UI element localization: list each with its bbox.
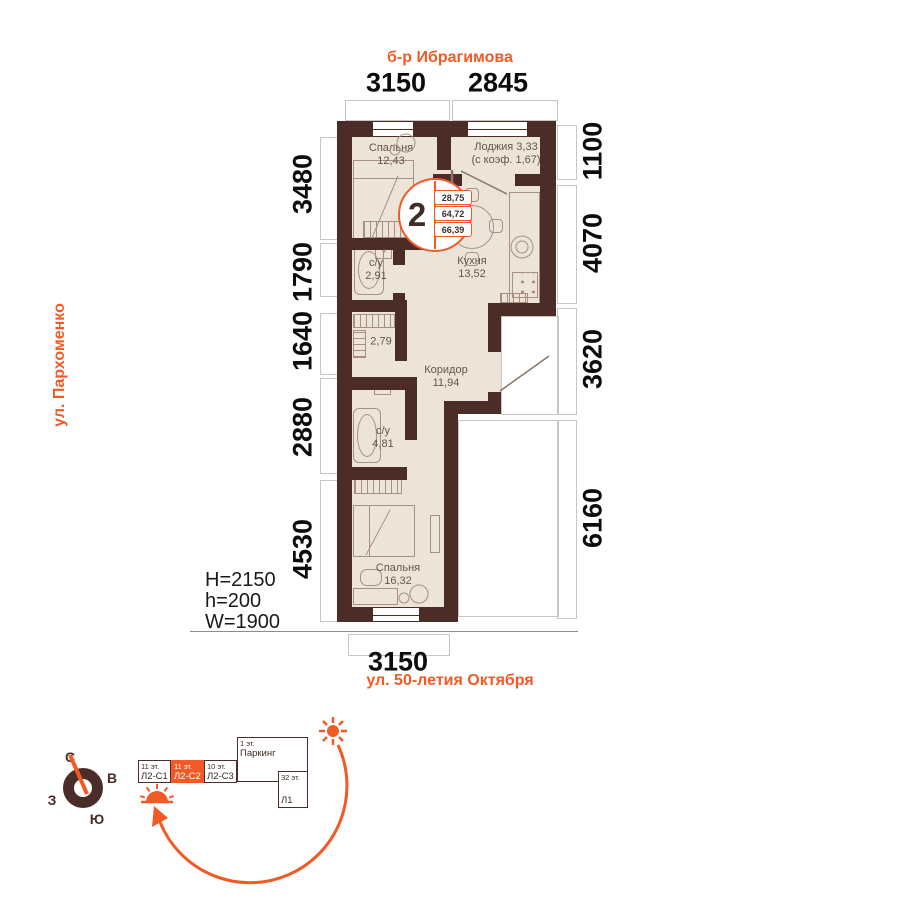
dim-bracket — [345, 100, 450, 121]
dim-top-1: 3150 — [366, 68, 426, 99]
area-chip-2: 64,72 — [434, 206, 472, 221]
dim-bracket — [557, 420, 577, 619]
wall — [405, 390, 417, 440]
window-bedroom2 — [372, 607, 420, 622]
spec-window: W=1900 — [205, 612, 280, 633]
kitchen-cabinet — [500, 293, 528, 303]
wall — [437, 137, 451, 170]
dim-left-1: 3480 — [288, 154, 319, 214]
desk — [353, 588, 398, 605]
room-label-corridor: Коридор 11,94 — [424, 364, 467, 390]
wall — [352, 467, 407, 480]
dim-right-1: 1100 — [578, 122, 609, 181]
wall — [540, 121, 556, 303]
compass-ring — [63, 768, 103, 808]
area-chip-1: 28,75 — [434, 190, 472, 205]
room-label-kitchen: Кухня 13,52 — [457, 255, 486, 281]
wall — [352, 300, 407, 312]
dim-right-4: 6160 — [578, 488, 609, 548]
wall — [352, 377, 417, 390]
dim-bottom-1: 3150 — [368, 647, 428, 678]
window-bedroom1 — [372, 121, 414, 137]
wall — [444, 401, 501, 414]
wall — [414, 121, 467, 137]
bed-pillow — [353, 505, 370, 557]
dim-right-2: 4070 — [578, 213, 609, 273]
room-label-bath2: с/у 4,81 — [372, 425, 393, 451]
area-chip-3: 66,39 — [434, 222, 472, 237]
dim-bracket — [557, 125, 577, 180]
sun-icon — [319, 717, 347, 745]
dim-left-5: 4530 — [288, 519, 319, 579]
dim-bracket — [557, 308, 577, 415]
wall — [393, 250, 405, 265]
neighbour-outline — [458, 420, 559, 617]
dim-top-2: 2845 — [468, 68, 528, 99]
building-block-l2s1[interactable]: 11 эт. Л2-С1 — [138, 760, 171, 783]
building-block-l2s3[interactable]: 10 эт. Л2-С3 — [204, 760, 237, 783]
spec-leader-line — [190, 631, 578, 632]
compass-west: З — [43, 792, 61, 808]
room-label-loggia: Лоджия 3,33 (с коэф. 1,67) — [471, 141, 540, 167]
compass-north: С — [61, 749, 79, 765]
spec-sill: h=200 — [205, 591, 280, 612]
dim-left-2: 1790 — [288, 242, 319, 302]
room-label-bedroom2: Спальня 16,32 — [376, 562, 420, 588]
street-top-label: б-р Ибрагимова — [387, 49, 513, 67]
wall — [488, 316, 501, 352]
shelving — [353, 314, 395, 328]
wall — [444, 414, 458, 622]
room-label-bedroom1: Спальня 12,43 — [369, 142, 413, 168]
room-label-wardrobe: 2,79 — [370, 336, 391, 349]
building-tower-l1[interactable]: 32 эт. Л1 — [278, 771, 308, 808]
shelving — [353, 330, 366, 358]
chair — [489, 219, 503, 233]
floorplan-page: б-р Ибрагимова ул. Пархоменко ул. 50-лет… — [0, 0, 900, 900]
window-loggia — [467, 121, 528, 137]
street-left-label: ул. Пархоменко — [51, 303, 69, 427]
dim-right-3: 3620 — [578, 329, 609, 389]
sunset-icon — [140, 784, 173, 802]
specs-block: H=2150 h=200 W=1900 — [205, 570, 280, 633]
rooms-count: 2 — [402, 196, 432, 234]
bench — [430, 515, 440, 553]
sun-path-arrowhead-icon — [152, 806, 168, 827]
wall — [337, 121, 352, 622]
wall — [515, 174, 541, 186]
wall — [420, 607, 458, 622]
dim-bracket — [452, 100, 558, 121]
dim-bracket — [557, 185, 577, 304]
wall — [488, 303, 556, 316]
dim-left-4: 2880 — [288, 397, 319, 457]
wall — [395, 312, 407, 361]
compass-south: Ю — [88, 811, 106, 827]
compass-east: В — [103, 770, 121, 786]
room-label-bath1: с/у 2,91 — [365, 257, 386, 283]
spec-ceiling: H=2150 — [205, 570, 280, 591]
dim-left-3: 1640 — [288, 311, 319, 371]
neighbour-outline — [501, 316, 559, 415]
building-block-l2s2-active[interactable]: 11 эт. Л2-С2 — [171, 760, 204, 783]
